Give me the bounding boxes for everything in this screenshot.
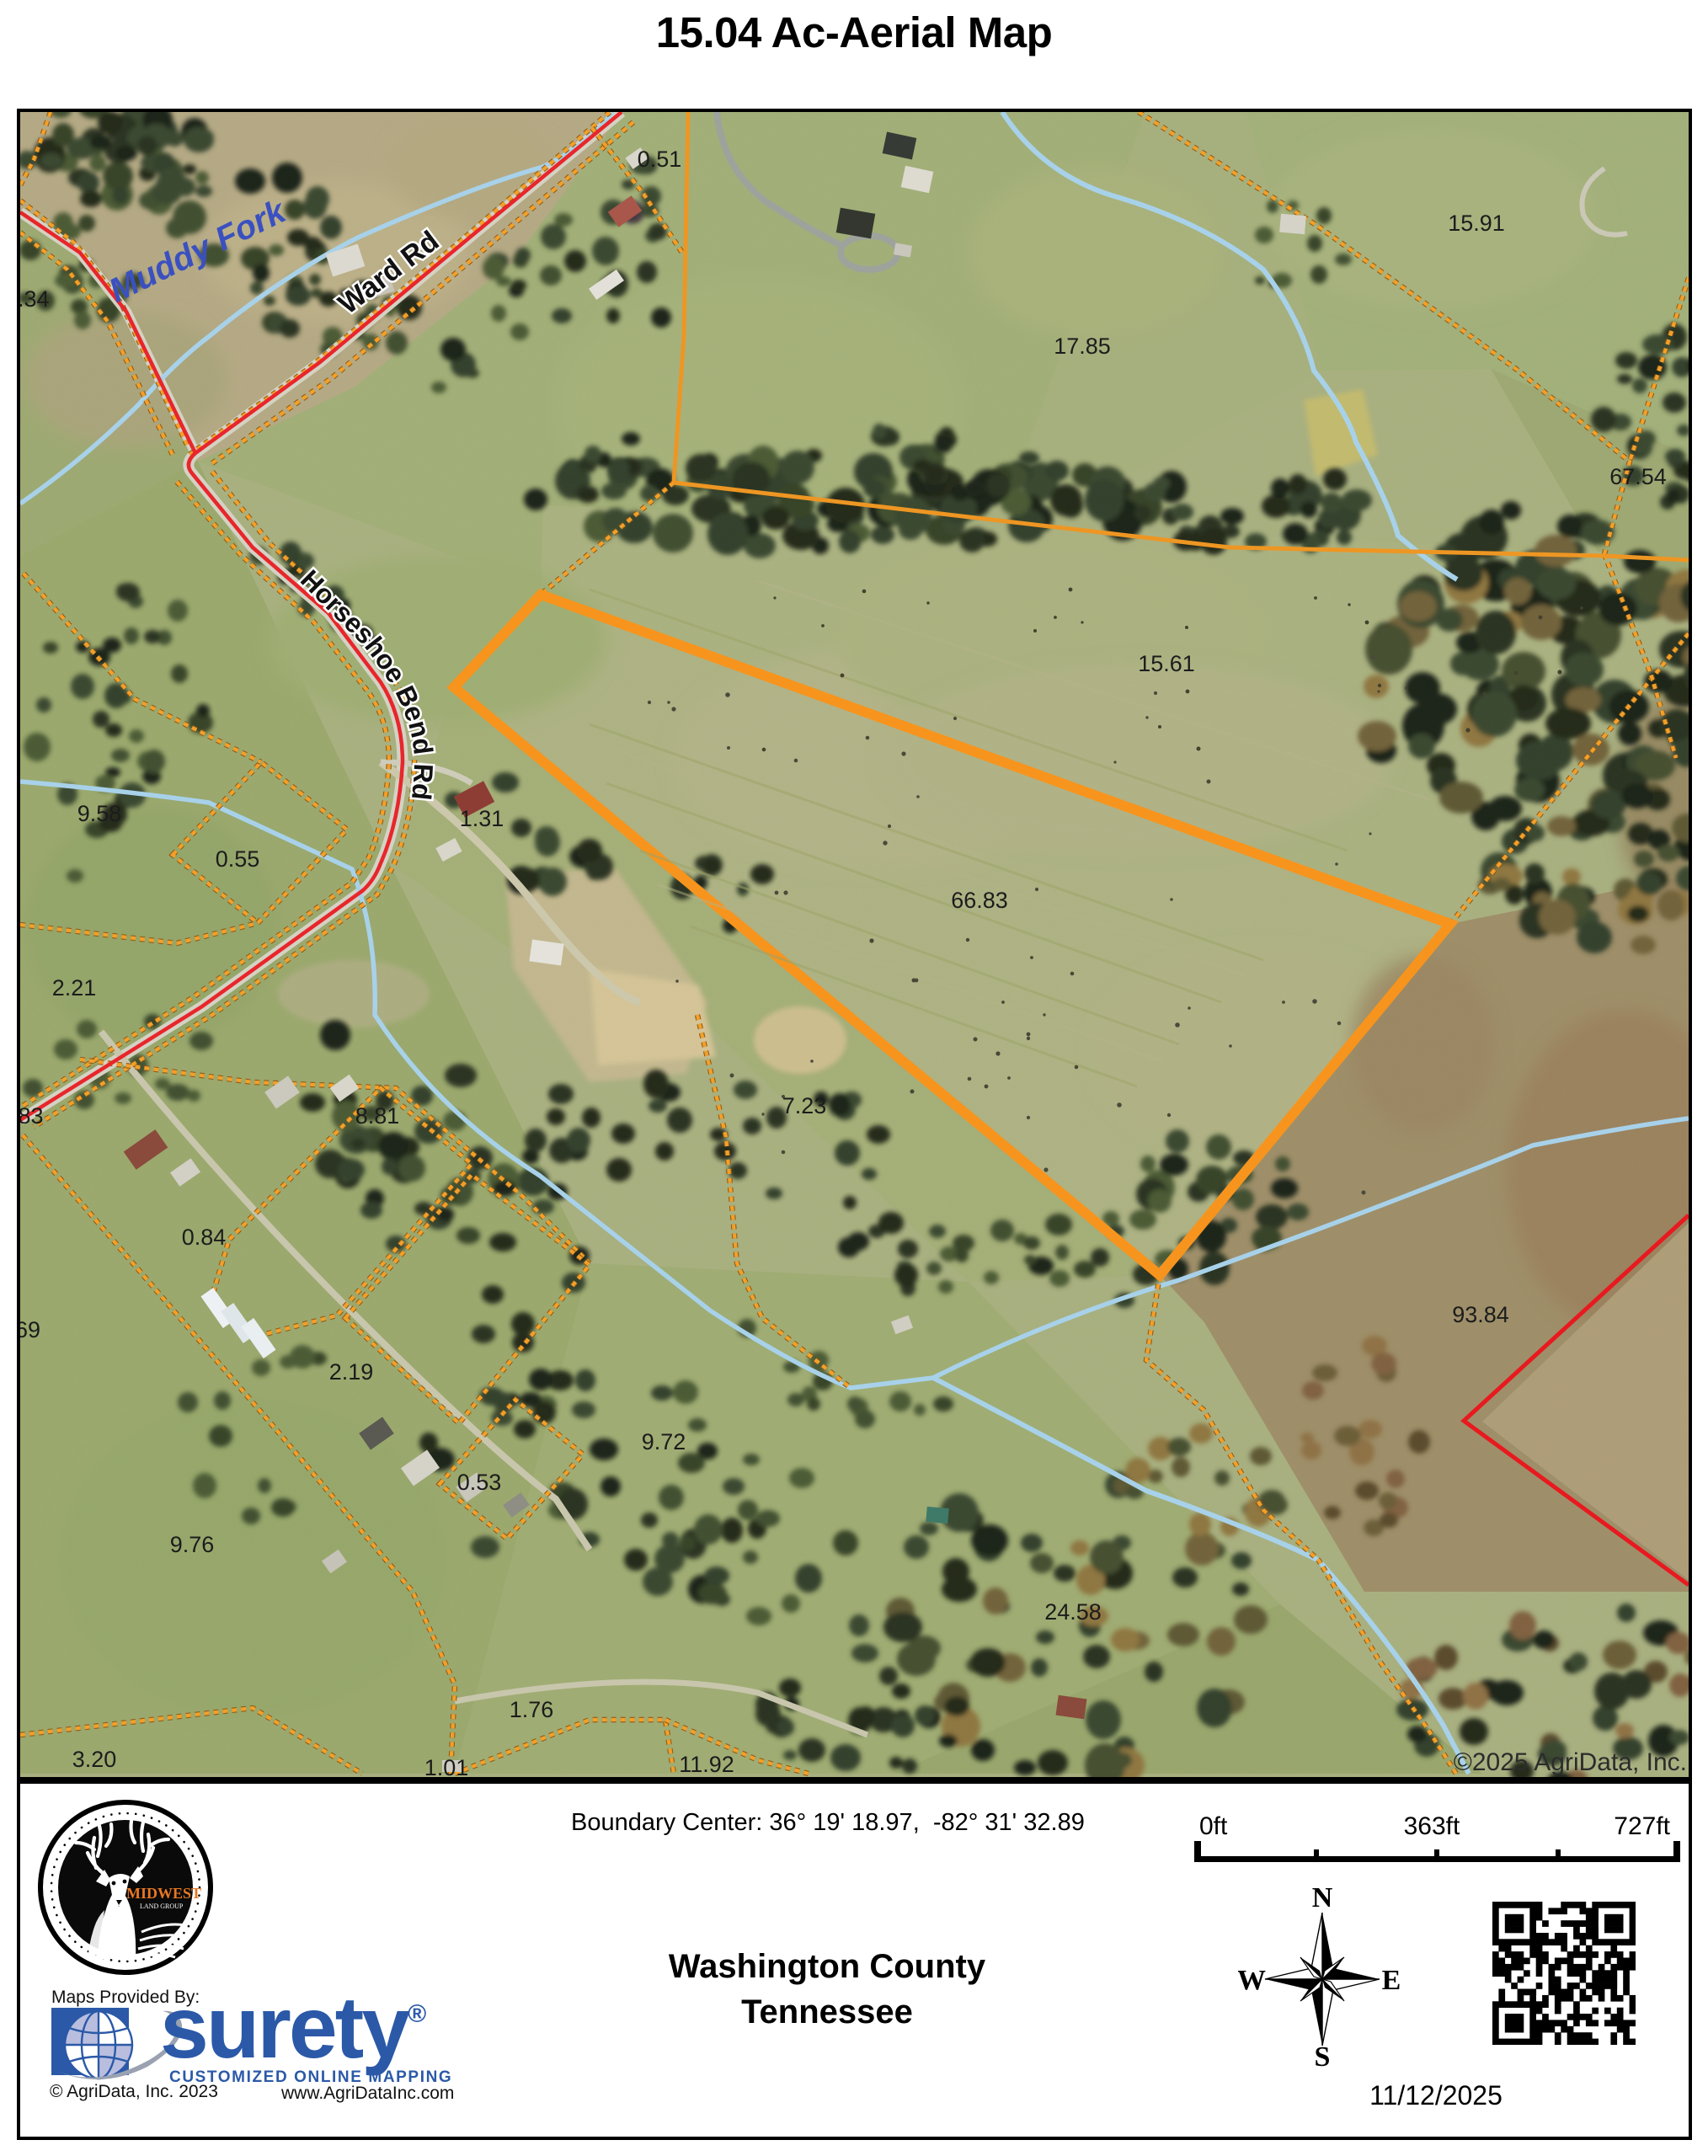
svg-text:24.58: 24.58: [1044, 1599, 1102, 1625]
svg-text:0.51: 0.51: [638, 147, 682, 172]
svg-text:67.54: 67.54: [1609, 464, 1667, 489]
svg-text:LAND GROUP: LAND GROUP: [140, 1903, 184, 1910]
svg-text:8.81: 8.81: [355, 1103, 400, 1129]
svg-text:9.58: 9.58: [77, 801, 122, 826]
svg-text:1.31: 1.31: [460, 806, 504, 831]
svg-text:11.92: 11.92: [679, 1752, 734, 1777]
svg-text:15.61: 15.61: [1138, 651, 1195, 676]
svg-text:.83: .83: [20, 1103, 44, 1129]
svg-text:3.20: 3.20: [72, 1747, 117, 1772]
svg-text:1.01: 1.01: [424, 1755, 469, 1777]
svg-text:9.76: 9.76: [170, 1532, 215, 1557]
svg-text:9.72: 9.72: [642, 1429, 686, 1454]
svg-text:727ft: 727ft: [1614, 1812, 1670, 1840]
svg-text:66.83: 66.83: [951, 888, 1008, 913]
svg-text:©2025 AgriData, Inc.: ©2025 AgriData, Inc.: [1454, 1748, 1687, 1776]
svg-text:S: S: [1315, 2041, 1331, 2072]
svg-text:363ft: 363ft: [1404, 1812, 1460, 1840]
svg-text:E: E: [1382, 1965, 1401, 1996]
svg-text:0ft: 0ft: [1199, 1812, 1228, 1840]
svg-text:5.34: 5.34: [20, 286, 50, 312]
svg-text:15.91: 15.91: [1448, 211, 1505, 236]
svg-text:0.55: 0.55: [216, 846, 260, 872]
svg-text:1.76: 1.76: [510, 1697, 554, 1722]
svg-text:69: 69: [20, 1317, 40, 1342]
svg-text:17.85: 17.85: [1054, 334, 1111, 359]
svg-text:N: N: [1312, 1886, 1333, 1913]
svg-text:W: W: [1238, 1965, 1266, 1996]
svg-text:0.53: 0.53: [457, 1470, 502, 1495]
svg-text:93.84: 93.84: [1452, 1302, 1509, 1327]
svg-text:0.84: 0.84: [182, 1225, 227, 1250]
svg-text:7.23: 7.23: [782, 1093, 827, 1118]
svg-text:2.21: 2.21: [52, 975, 97, 1001]
svg-text:MIDWEST: MIDWEST: [126, 1885, 201, 1902]
svg-text:2.19: 2.19: [329, 1359, 374, 1385]
